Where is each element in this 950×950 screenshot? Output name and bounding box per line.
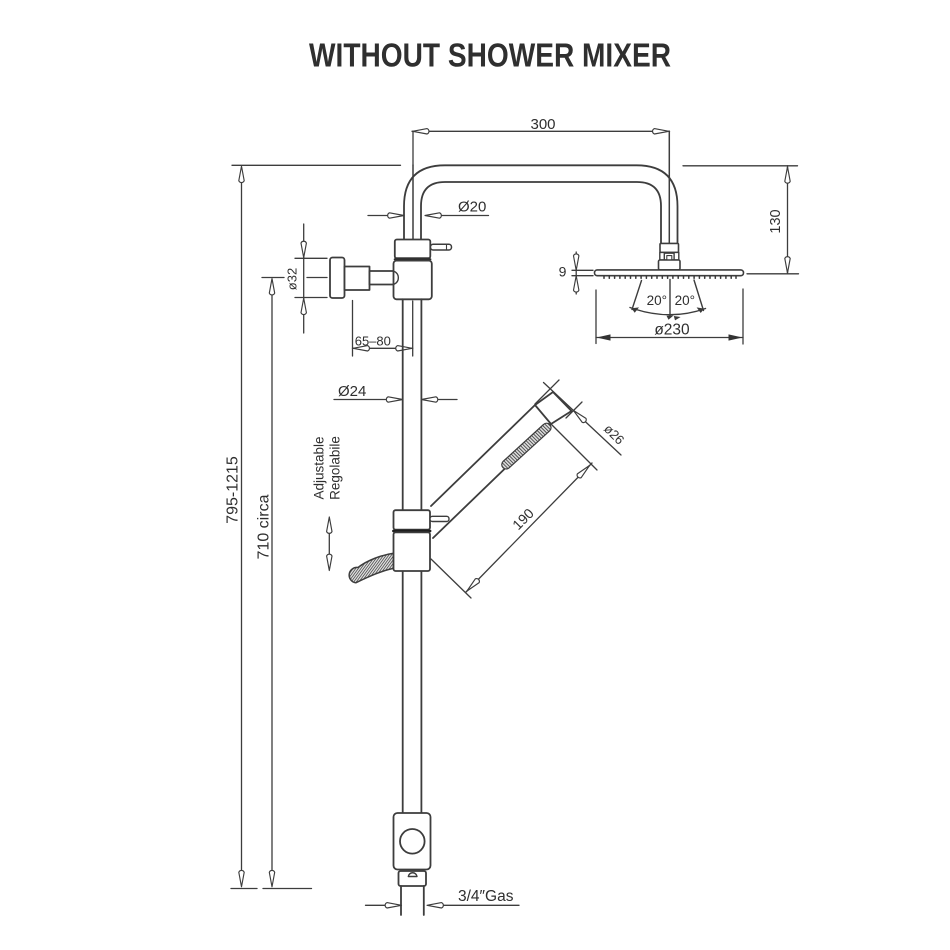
svg-text:Ø20: Ø20 [458,199,486,216]
svg-text:Ø24: Ø24 [338,383,366,400]
svg-text:795-1215: 795-1215 [225,456,242,524]
svg-text:65–80: 65–80 [355,334,391,349]
svg-text:9: 9 [559,263,567,279]
svg-text:710 circa: 710 circa [256,494,273,559]
svg-text:20°: 20° [675,293,695,308]
svg-text:190: 190 [509,505,537,533]
svg-text:ø32: ø32 [285,268,300,290]
svg-text:ø26: ø26 [601,421,627,447]
svg-text:Adjustable: Adjustable [312,436,327,499]
svg-text:300: 300 [530,116,555,133]
svg-text:20°: 20° [647,293,667,308]
svg-text:3/4″Gas: 3/4″Gas [458,888,514,905]
svg-text:WITHOUT SHOWER MIXER: WITHOUT SHOWER MIXER [309,38,671,75]
svg-text:130: 130 [768,209,784,233]
svg-text:Regolabile: Regolabile [328,436,343,500]
svg-text:ø230: ø230 [654,322,690,339]
